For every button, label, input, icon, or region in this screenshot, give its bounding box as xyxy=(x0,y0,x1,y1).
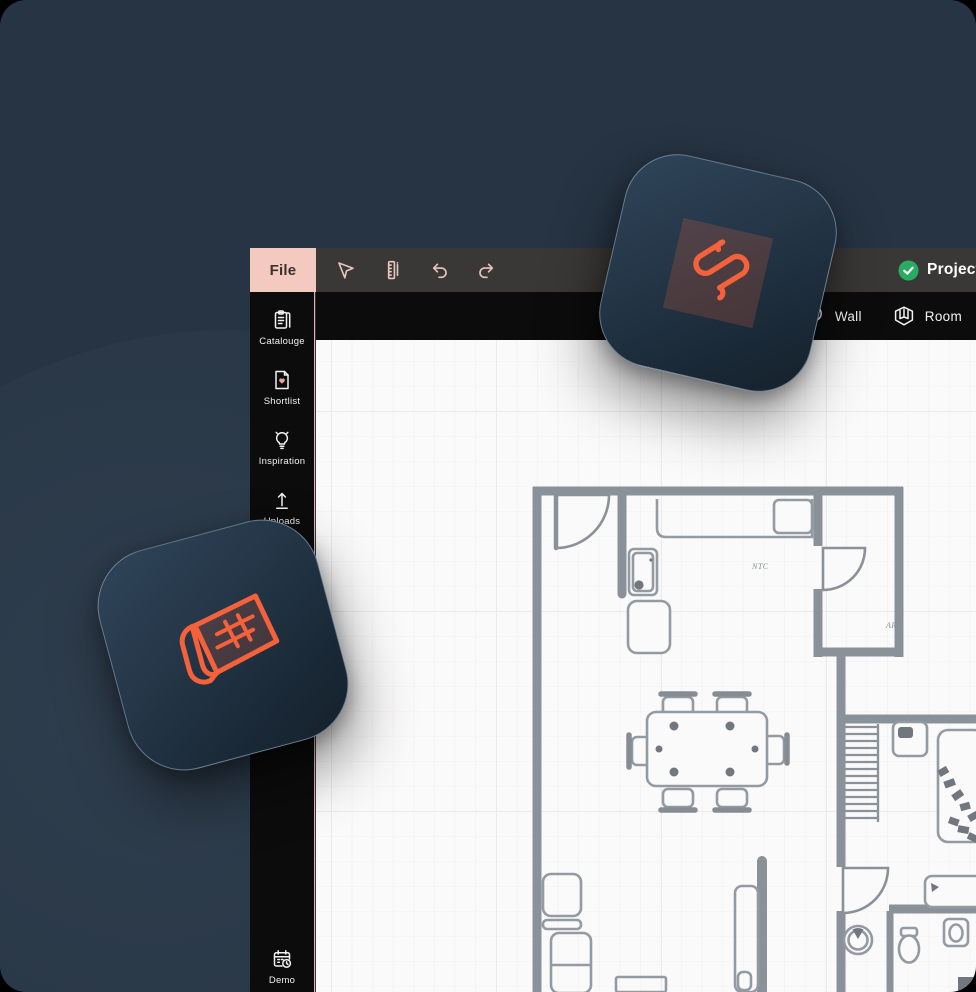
shortlist-heart-doc-icon xyxy=(270,368,294,392)
door-entrance xyxy=(556,495,609,548)
check-circle-icon xyxy=(898,260,919,281)
floorplan-canvas[interactable]: NTC ART xyxy=(316,340,976,992)
kitchen-stove xyxy=(774,500,812,533)
demo-calendar-icon xyxy=(270,947,294,971)
sidebar-item-catalogue[interactable]: Catalouge xyxy=(259,308,305,347)
hero-stage: NTC ART Project File xyxy=(0,0,976,992)
stairs xyxy=(845,724,878,822)
redo-icon[interactable] xyxy=(475,259,498,282)
room-tool-button[interactable]: Room xyxy=(892,304,962,328)
ruler-icon[interactable] xyxy=(381,259,404,282)
sidebar-item-label: Inspiration xyxy=(259,456,306,467)
logo-backdrop xyxy=(663,218,773,328)
project-label: Project xyxy=(927,261,976,279)
undo-icon[interactable] xyxy=(428,259,451,282)
upload-arrow-icon xyxy=(270,488,294,512)
rug xyxy=(616,977,666,992)
cabinet-b xyxy=(551,933,591,992)
kitchen-cabinet xyxy=(628,601,670,653)
cursor-icon[interactable] xyxy=(334,259,357,282)
corner-block xyxy=(958,977,976,992)
file-tab-label: File xyxy=(270,262,297,279)
sidebar-item-inspiration[interactable]: Inspiration xyxy=(259,428,306,467)
file-tab[interactable]: File xyxy=(250,248,316,292)
inspiration-bulb-icon xyxy=(270,428,294,452)
room-box-icon xyxy=(892,304,916,328)
shelf xyxy=(543,920,581,929)
sidebar-item-demo[interactable]: Demo xyxy=(269,947,295,986)
cabinet-a xyxy=(543,874,581,916)
toilet xyxy=(899,936,919,963)
sidebar-item-label: Shortlist xyxy=(264,396,301,407)
door-room xyxy=(823,548,865,590)
brand-squiggle-icon xyxy=(669,224,767,322)
wall-tool-label: Wall xyxy=(835,309,862,324)
annotation-room: ART xyxy=(885,621,902,630)
floor-plan: NTC ART xyxy=(316,340,976,992)
blueprint-scroll-icon xyxy=(150,579,297,712)
dining-set xyxy=(629,694,787,810)
catalogue-clipboard-icon xyxy=(270,308,294,332)
room-tool-label: Room xyxy=(925,309,962,324)
sidebar-item-shortlist[interactable]: Shortlist xyxy=(264,368,301,407)
project-status[interactable]: Project xyxy=(898,248,976,292)
door-hall xyxy=(843,868,888,913)
sidebar-item-label: Demo xyxy=(269,975,295,986)
annotation-kitchen: NTC xyxy=(751,562,769,571)
sidebar-item-label: Catalouge xyxy=(259,336,305,347)
